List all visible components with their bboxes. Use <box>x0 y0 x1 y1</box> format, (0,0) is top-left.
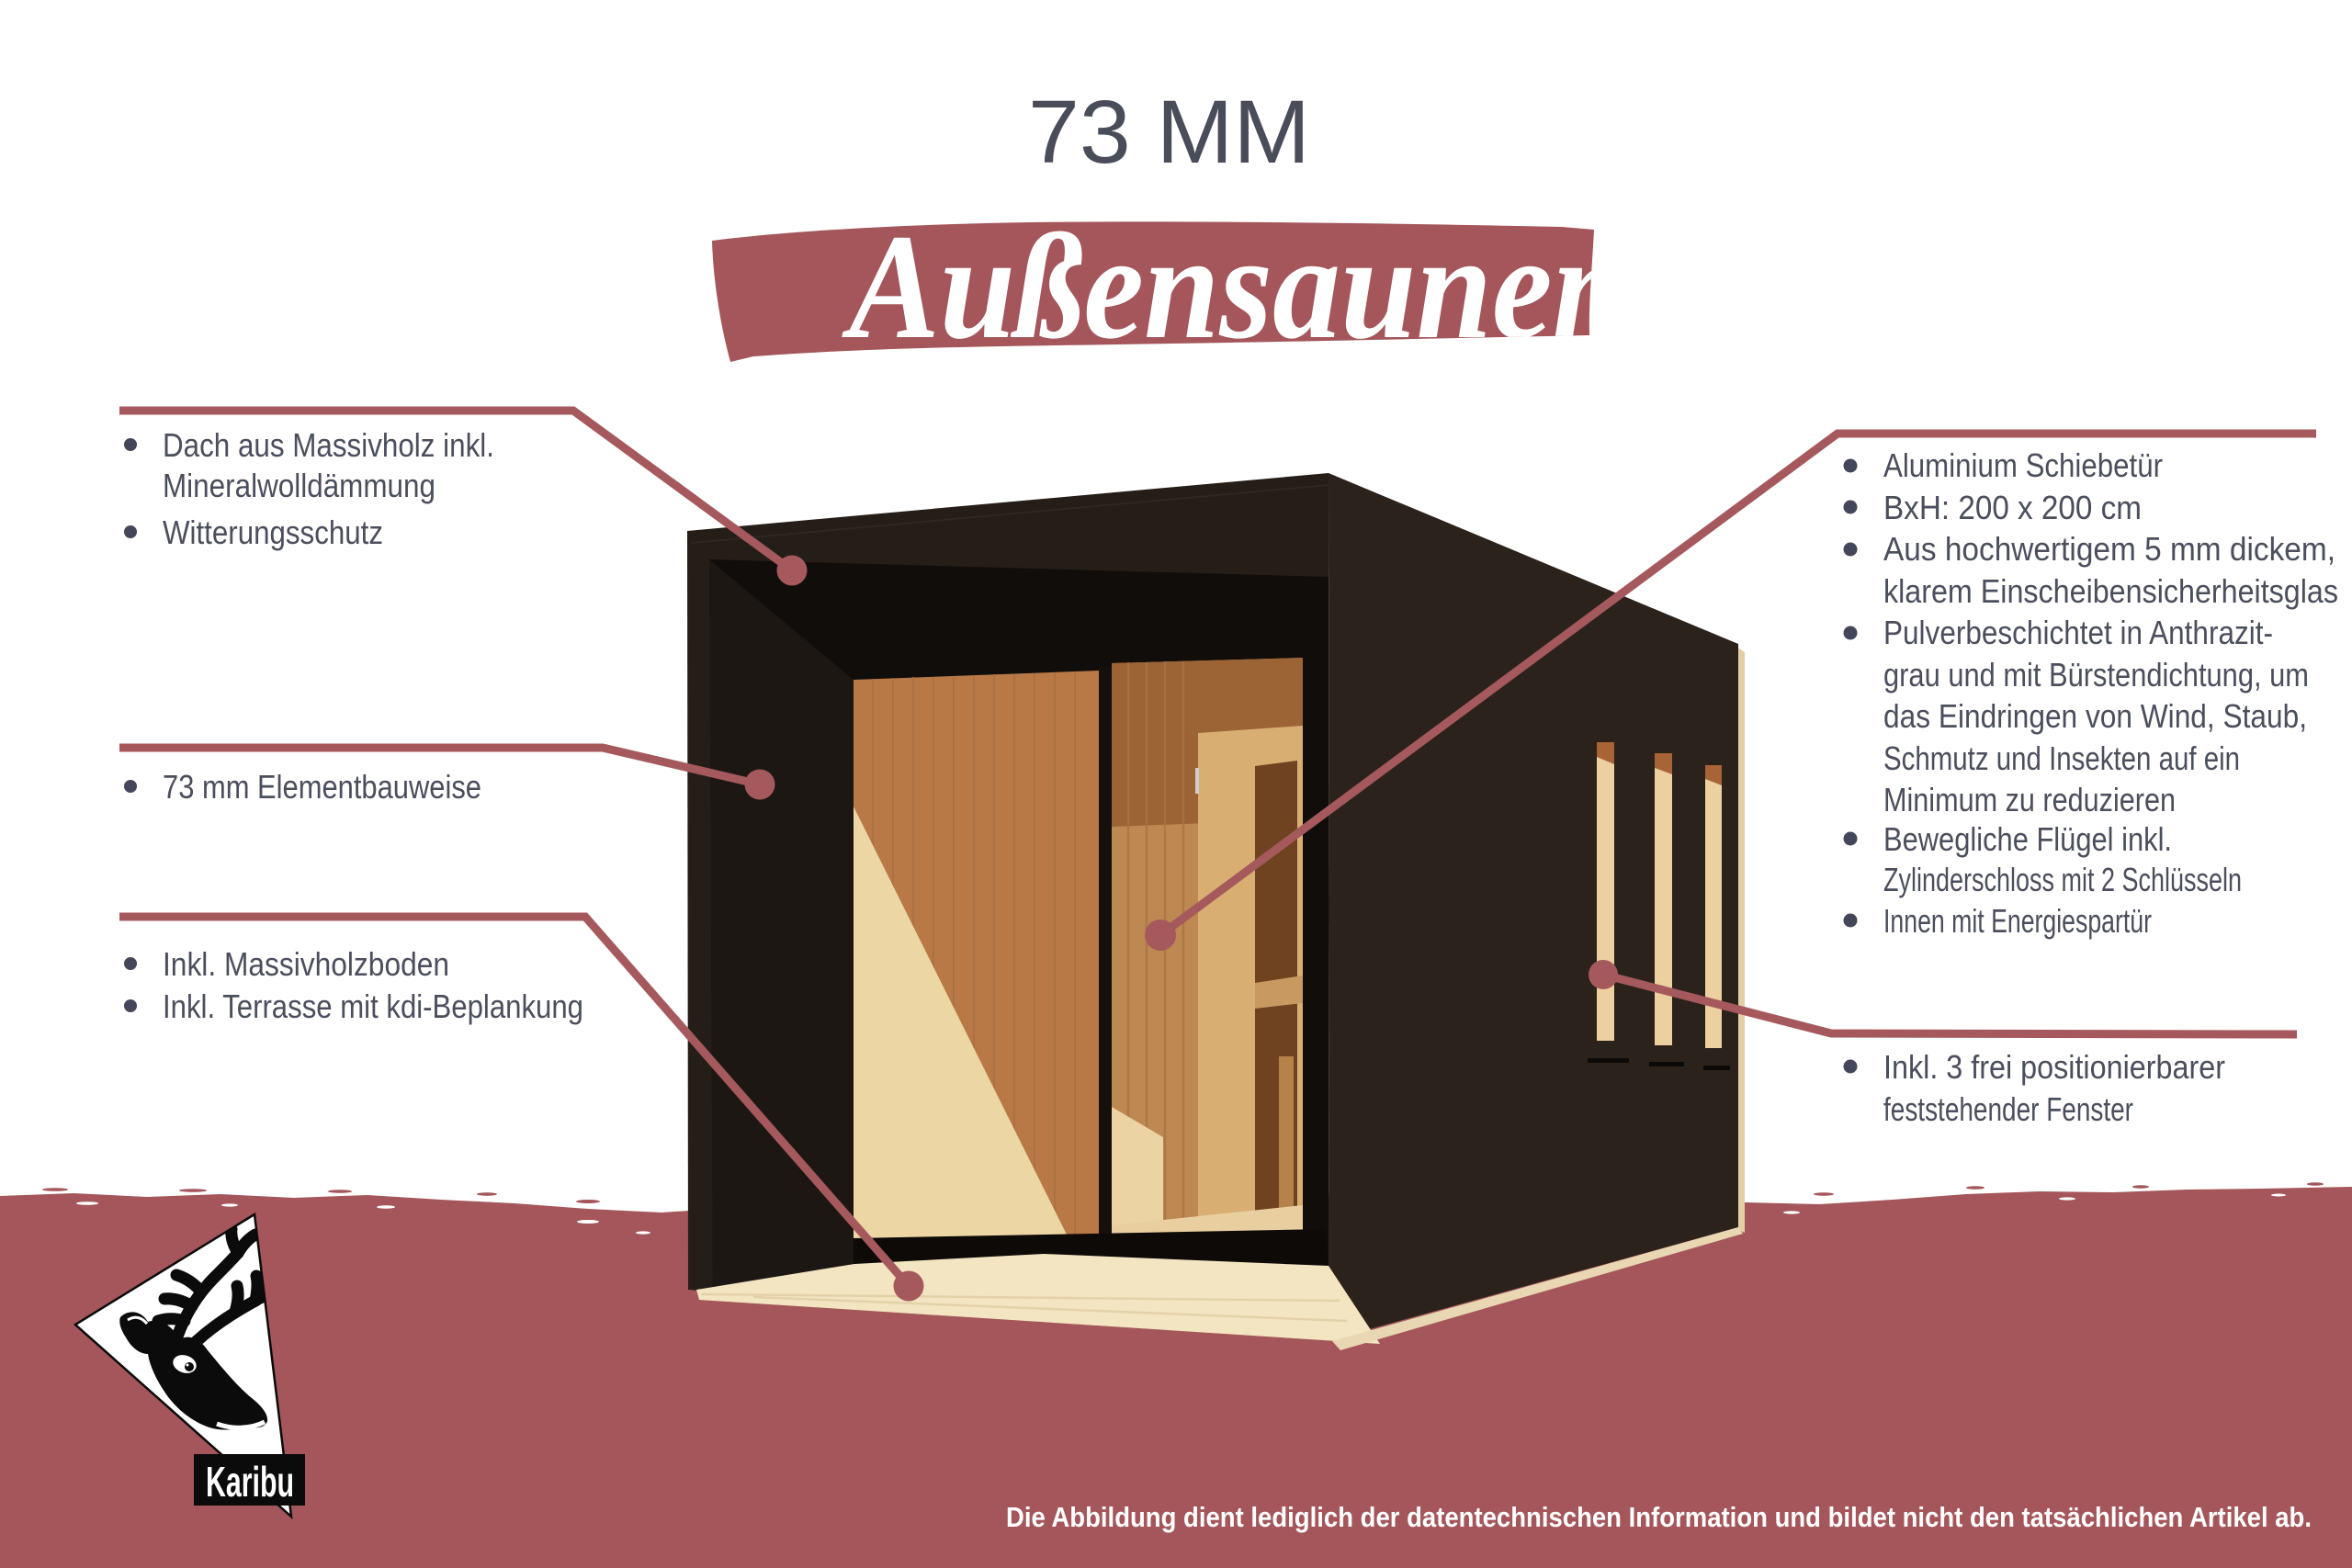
svg-text:Minimum zu reduzieren: Minimum zu reduzieren <box>1883 781 2176 818</box>
svg-text:Witterungsschutz: Witterungsschutz <box>163 513 383 551</box>
svg-text:klarem Einscheibensicherheitsg: klarem Einscheibensicherheitsglas <box>1883 572 2338 610</box>
svg-text:Pulverbeschichtet in Anthrazit: Pulverbeschichtet in Anthrazit- <box>1883 614 2273 651</box>
svg-text:73 MM: 73 MM <box>1028 82 1310 182</box>
svg-text:feststehender Fenster: feststehender Fenster <box>1883 1090 2133 1128</box>
svg-text:Inkl. 3 frei positionierbarer: Inkl. 3 frei positionierbarer <box>1883 1048 2225 1086</box>
svg-text:Mineralwolldämmung: Mineralwolldämmung <box>163 467 435 504</box>
svg-text:Bewegliche Flügel inkl.: Bewegliche Flügel inkl. <box>1883 820 2172 858</box>
svg-text:Innen mit Energiespartür: Innen mit Energiespartür <box>1883 902 2152 940</box>
svg-text:Schmutz und Insekten auf ein: Schmutz und Insekten auf ein <box>1883 739 2240 777</box>
svg-text:Außensaunen: Außensaunen <box>842 204 1628 370</box>
svg-text:BxH: 200 x 200 cm: BxH: 200 x 200 cm <box>1883 489 2142 526</box>
svg-text:Die Abbildung dient lediglich: Die Abbildung dient lediglich der datent… <box>1006 1501 2312 1533</box>
svg-text:Aluminium Schiebetür: Aluminium Schiebetür <box>1883 446 2163 484</box>
svg-text:Aus hochwertigem 5 mm dickem,: Aus hochwertigem 5 mm dickem, <box>1883 530 2335 568</box>
svg-text:das Eindringen von Wind, Staub: das Eindringen von Wind, Staub, <box>1883 697 2307 735</box>
svg-text:Dach aus Massivholz inkl.: Dach aus Massivholz inkl. <box>163 426 494 464</box>
svg-text:Inkl. Massivholzboden: Inkl. Massivholzboden <box>163 945 449 983</box>
svg-text:grau und mit Bürstendichtung,: grau und mit Bürstendichtung, um <box>1883 656 2309 694</box>
svg-text:Karibu: Karibu <box>206 1458 294 1506</box>
svg-text:73 mm Elementbauweise: 73 mm Elementbauweise <box>163 768 481 806</box>
svg-text:Zylinderschloss mit 2 Schlüsse: Zylinderschloss mit 2 Schlüsseln <box>1883 861 2242 898</box>
svg-text:Inkl. Terrasse mit kdi-Beplank: Inkl. Terrasse mit kdi-Beplankung <box>163 987 583 1025</box>
